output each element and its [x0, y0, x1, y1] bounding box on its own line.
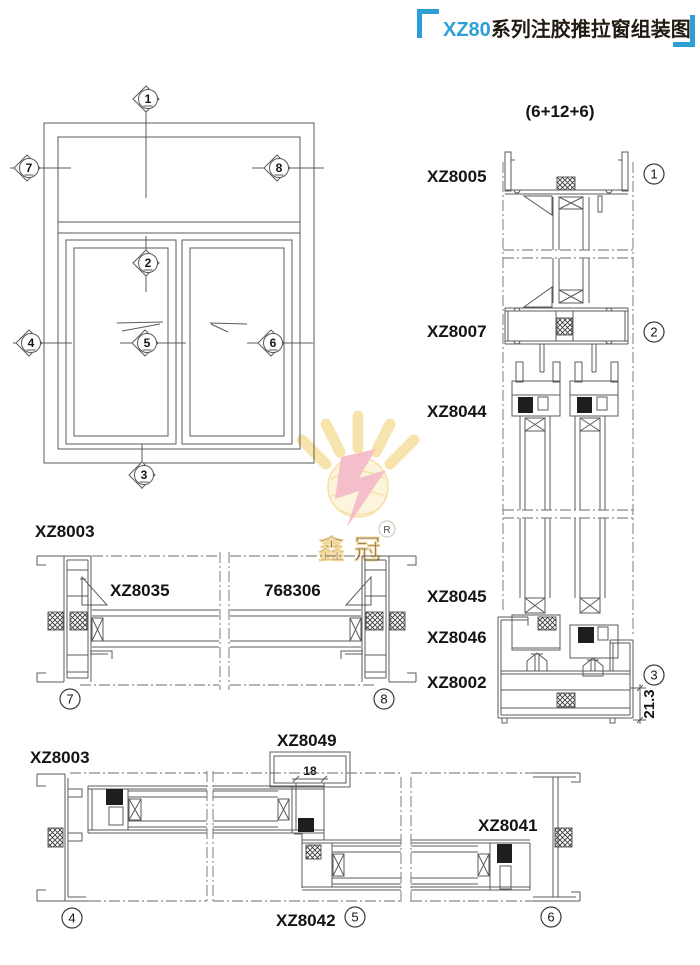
detail-7-number: 7	[66, 692, 73, 707]
brand-watermark: 鑫冠 R	[302, 416, 414, 565]
detail-2-number: 2	[650, 325, 657, 340]
left-sash-panel	[66, 240, 176, 444]
label-xz8005: XZ8005	[427, 167, 487, 186]
marker-1: 1	[133, 86, 159, 198]
label-768306: 768306	[264, 581, 321, 600]
label-xz8044: XZ8044	[427, 402, 487, 421]
marker-4: 4	[13, 330, 72, 356]
detail-circle-4: 4	[62, 908, 82, 928]
label-xz8007: XZ8007	[427, 322, 487, 341]
detail-circle-1: 1	[644, 164, 664, 184]
label-xz8035: XZ8035	[110, 581, 170, 600]
detail-1-number: 1	[650, 167, 657, 182]
bottom-left-jamb	[37, 774, 90, 901]
marker-4-number: 4	[28, 336, 35, 350]
bottom-sash1	[88, 786, 324, 840]
detail-circle-7: 7	[60, 689, 80, 709]
detail-circle-2: 2	[644, 322, 664, 342]
title-bracket-left-bar	[417, 9, 422, 38]
page-title: XZ80系列注胶推拉窗组装图	[443, 17, 691, 41]
marker-1-number: 1	[145, 92, 152, 106]
detail-circle-5: 5	[345, 907, 365, 927]
detail-3-number: 3	[650, 668, 657, 683]
detail-8-number: 8	[380, 692, 387, 707]
bottom-horizontal-section-view: XZ8003 XZ8049 XZ8041 XZ8042	[30, 731, 580, 930]
label-mid-xz8003: XZ8003	[35, 522, 95, 541]
marker-5-number: 5	[144, 336, 151, 350]
marker-6: 6	[247, 330, 313, 356]
title-name: 系列注胶推拉窗组装图	[491, 17, 691, 41]
window-elevation-view: 1 2 3 4 5	[10, 86, 324, 489]
bottom-sash2	[302, 840, 530, 890]
label-xz8042: XZ8042	[276, 911, 336, 930]
sill-height-dimension: 21.3	[630, 684, 658, 724]
detail-5-number: 5	[351, 910, 358, 925]
detail-circle-6: 6	[541, 907, 561, 927]
title-block: XZ80系列注胶推拉窗组装图	[417, 9, 695, 47]
marker-3-number: 3	[141, 468, 148, 482]
profile-sash-top-rails	[512, 362, 618, 416]
label-xz8045: XZ8045	[427, 587, 487, 606]
marker-2-number: 2	[145, 256, 152, 270]
label-bottom-xz8003: XZ8003	[30, 748, 90, 767]
assembly-drawing-page: 鑫冠 R XZ80系列注胶推拉窗组装图 1	[0, 0, 700, 965]
marker-7-number: 7	[26, 161, 33, 175]
mid-glass-unit	[92, 610, 361, 647]
marker-8: 8	[252, 155, 324, 181]
marker-7: 7	[10, 155, 71, 181]
detail-circle-8: 8	[374, 689, 394, 709]
detail-6-number: 6	[547, 910, 554, 925]
label-xz8041: XZ8041	[478, 816, 538, 835]
marker-2: 2	[133, 236, 159, 292]
sill-dim-value: 21.3	[641, 689, 658, 718]
bottom-right-jamb	[533, 773, 580, 901]
label-xz8046: XZ8046	[427, 628, 487, 647]
sash-glass-units	[520, 416, 605, 613]
detail-circle-3: 3	[644, 665, 664, 685]
marker-8-number: 8	[276, 161, 283, 175]
mid-left-jamb	[37, 556, 112, 682]
label-xz8049: XZ8049	[277, 731, 337, 750]
mid-right-jamb	[341, 556, 416, 682]
profile-sill	[498, 617, 633, 723]
marker-6-number: 6	[270, 336, 277, 350]
overlap-dim-value: 18	[303, 764, 317, 778]
vertical-section-view: (6+12+6)	[427, 102, 664, 724]
title-series: XZ80	[443, 19, 491, 41]
label-xz8002: XZ8002	[427, 673, 487, 692]
marker-3: 3	[129, 444, 155, 489]
drawing-canvas: 鑫冠 R XZ80系列注胶推拉窗组装图 1	[0, 0, 700, 965]
glass-spec-label: (6+12+6)	[526, 102, 595, 121]
registered-mark-letter: R	[383, 525, 390, 536]
detail-4-number: 4	[68, 911, 75, 926]
